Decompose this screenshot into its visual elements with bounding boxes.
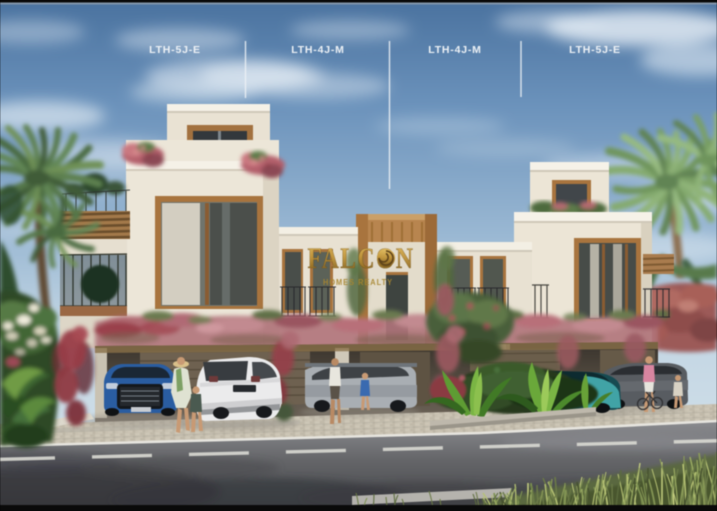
svg-text:LTH-5J-E: LTH-5J-E — [149, 44, 201, 56]
svg-text:LTH-5J-E: LTH-5J-E — [569, 44, 621, 56]
svg-text:LTH-4J-M: LTH-4J-M — [428, 44, 481, 56]
svg-text:LTH-4J-M: LTH-4J-M — [291, 44, 344, 56]
svg-text:FALCON: FALCON — [308, 242, 415, 275]
svg-text:HOMES REALTY: HOMES REALTY — [323, 278, 393, 287]
